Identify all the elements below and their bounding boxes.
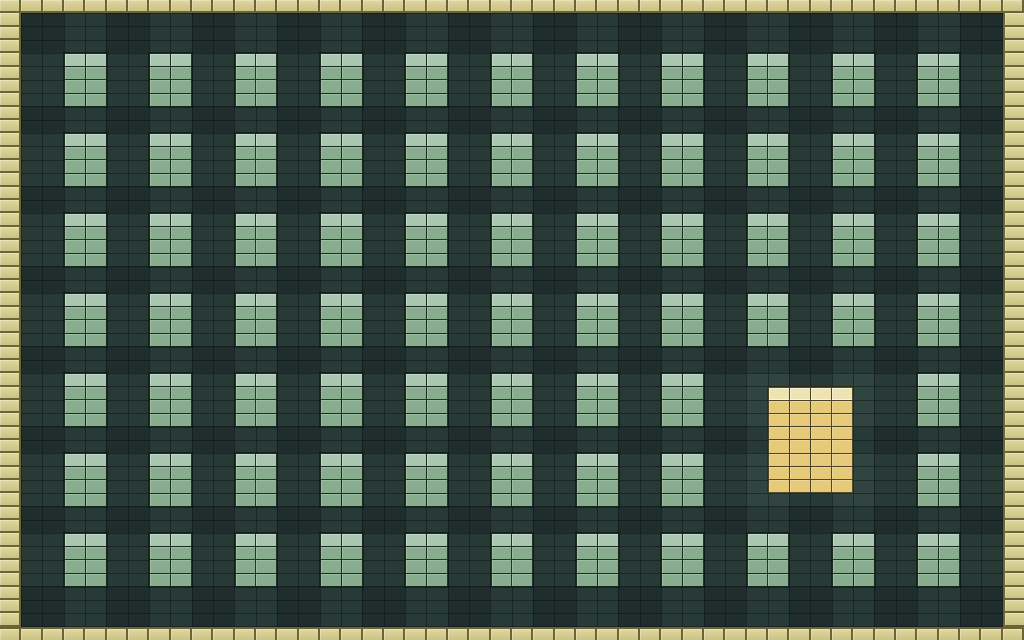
block[interactable] (64, 293, 107, 346)
block-cell (598, 387, 618, 399)
active-block-cell (769, 401, 789, 413)
block[interactable] (320, 53, 363, 106)
block-cell (598, 400, 618, 412)
block-cell (65, 240, 85, 252)
border-tile (555, 627, 576, 640)
block-cell (854, 560, 874, 572)
block[interactable] (917, 53, 960, 106)
block-cell (406, 454, 426, 466)
block-cell (321, 334, 341, 346)
border-tile (1003, 147, 1024, 160)
border-tile (0, 547, 21, 560)
block[interactable] (747, 293, 790, 346)
border-tile (0, 200, 21, 213)
block[interactable] (149, 53, 192, 106)
border-tile (1003, 573, 1024, 586)
block[interactable] (235, 133, 278, 186)
block-cell (492, 307, 512, 319)
block[interactable] (576, 213, 619, 266)
block-cell (492, 334, 512, 346)
block-cell (150, 480, 170, 492)
block-cell (236, 147, 256, 159)
block-cell (236, 467, 256, 479)
block-cell (833, 174, 853, 186)
block[interactable] (576, 533, 619, 586)
border-tile (1003, 213, 1024, 226)
block-cell (171, 454, 191, 466)
block-cell (833, 547, 853, 559)
block-cell (662, 494, 682, 506)
block[interactable] (405, 373, 448, 426)
block-cell (256, 254, 276, 266)
block-cell (662, 320, 682, 332)
block-cell (683, 374, 703, 386)
block[interactable] (747, 533, 790, 586)
block-cell (577, 480, 597, 492)
block-cell (171, 67, 191, 79)
block[interactable] (64, 133, 107, 186)
border-tile (0, 187, 21, 200)
block-cell (833, 214, 853, 226)
block-cell (342, 574, 362, 586)
block-cell (492, 560, 512, 572)
block-cell (577, 320, 597, 332)
border-tile (299, 627, 320, 640)
block-cell (492, 160, 512, 172)
block-cell (236, 174, 256, 186)
block-cell (512, 547, 532, 559)
border-tile (1003, 480, 1024, 493)
block-cell (150, 67, 170, 79)
block[interactable] (576, 373, 619, 426)
block-cell (171, 294, 191, 306)
block-cell (342, 374, 362, 386)
block-cell (65, 67, 85, 79)
block-cell (918, 574, 938, 586)
block-cell (577, 294, 597, 306)
block-cell (236, 454, 256, 466)
active-block-cell (790, 467, 810, 479)
block-cell (492, 214, 512, 226)
block[interactable] (917, 453, 960, 506)
block[interactable] (661, 53, 704, 106)
block-cell (236, 307, 256, 319)
block[interactable] (747, 213, 790, 266)
block-cell (406, 334, 426, 346)
border-tile (853, 627, 874, 640)
block[interactable] (576, 53, 619, 106)
block-cell (150, 307, 170, 319)
block-cell (854, 80, 874, 92)
block-cell (406, 94, 426, 106)
border-tile (0, 373, 21, 386)
block-cell (427, 254, 447, 266)
block[interactable] (491, 133, 534, 186)
block[interactable] (405, 453, 448, 506)
border-tile (0, 573, 21, 586)
block-cell (86, 547, 106, 559)
block-cell (939, 480, 959, 492)
block-cell (833, 240, 853, 252)
border-tile (491, 627, 512, 640)
border-tile (0, 387, 21, 400)
block-cell (86, 454, 106, 466)
block[interactable] (235, 453, 278, 506)
block-cell (342, 67, 362, 79)
block[interactable] (64, 533, 107, 586)
block[interactable] (405, 293, 448, 346)
block-cell (598, 54, 618, 66)
border-tile (1003, 507, 1024, 520)
block-cell (854, 134, 874, 146)
border-tile (683, 0, 704, 13)
block-cell (662, 254, 682, 266)
border-tile (1003, 400, 1024, 413)
block-cell (65, 414, 85, 426)
border-tile (0, 93, 21, 106)
block[interactable] (661, 293, 704, 346)
block[interactable] (491, 213, 534, 266)
block-cell (598, 560, 618, 572)
block-cell (150, 240, 170, 252)
block-cell (256, 160, 276, 172)
block[interactable] (491, 293, 534, 346)
block-cell (342, 214, 362, 226)
block-cell (512, 334, 532, 346)
block[interactable] (235, 213, 278, 266)
block-cell (171, 160, 191, 172)
border-tile (619, 0, 640, 13)
block-cell (577, 534, 597, 546)
block-cell (918, 307, 938, 319)
block[interactable] (661, 373, 704, 426)
active-block[interactable] (768, 387, 853, 494)
block-cell (65, 480, 85, 492)
block-cell (65, 467, 85, 479)
border-tile (576, 0, 597, 13)
block-cell (427, 374, 447, 386)
block-cell (321, 320, 341, 332)
block[interactable] (661, 453, 704, 506)
block[interactable] (64, 53, 107, 106)
border-tile (1003, 67, 1024, 80)
block[interactable] (491, 53, 534, 106)
border-tile (661, 0, 682, 13)
block[interactable] (320, 213, 363, 266)
active-block-cell (769, 440, 789, 452)
border-tile (1003, 267, 1024, 280)
block[interactable] (661, 533, 704, 586)
block-cell (854, 214, 874, 226)
block[interactable] (747, 53, 790, 106)
border-tile (0, 107, 21, 120)
block-cell (321, 54, 341, 66)
block[interactable] (405, 533, 448, 586)
block-cell (683, 54, 703, 66)
block-cell (768, 254, 788, 266)
block[interactable] (917, 293, 960, 346)
block-cell (854, 334, 874, 346)
block-cell (256, 494, 276, 506)
border-tile (640, 627, 661, 640)
block-cell (598, 574, 618, 586)
block-cell (939, 80, 959, 92)
block[interactable] (149, 373, 192, 426)
block-cell (598, 147, 618, 159)
block-cell (256, 307, 276, 319)
block[interactable] (235, 373, 278, 426)
active-block-cell (832, 427, 852, 439)
block-cell (86, 467, 106, 479)
block-cell (577, 467, 597, 479)
block-cell (86, 534, 106, 546)
block[interactable] (149, 293, 192, 346)
block-cell (662, 374, 682, 386)
block-cell (768, 574, 788, 586)
border-tile (1003, 93, 1024, 106)
border-tile (384, 627, 405, 640)
block-cell (683, 147, 703, 159)
border-tile (0, 333, 21, 346)
block[interactable] (149, 533, 192, 586)
block[interactable] (149, 213, 192, 266)
block[interactable] (491, 533, 534, 586)
block-cell (150, 294, 170, 306)
block-cell (833, 160, 853, 172)
block-cell (854, 294, 874, 306)
block-cell (492, 494, 512, 506)
block-cell (598, 494, 618, 506)
border-tile (768, 627, 789, 640)
block[interactable] (576, 293, 619, 346)
block-cell (939, 67, 959, 79)
block-cell (236, 414, 256, 426)
block-cell (939, 174, 959, 186)
border-tile (1003, 13, 1024, 26)
block-cell (577, 414, 597, 426)
block-cell (512, 560, 532, 572)
block-cell (512, 294, 532, 306)
block[interactable] (64, 213, 107, 266)
active-block-cell (790, 427, 810, 439)
block-cell (171, 560, 191, 572)
block-cell (171, 414, 191, 426)
block-cell (65, 254, 85, 266)
border-tile (384, 0, 405, 13)
block-cell (406, 54, 426, 66)
border-tile (1003, 587, 1024, 600)
block[interactable] (832, 133, 875, 186)
border-tile (981, 0, 1002, 13)
block-cell (683, 134, 703, 146)
block[interactable] (405, 133, 448, 186)
border-tile (1003, 280, 1024, 293)
block-cell (65, 54, 85, 66)
block-cell (768, 94, 788, 106)
block-cell (86, 80, 106, 92)
block-cell (512, 454, 532, 466)
block-cell (768, 80, 788, 92)
block-cell (427, 387, 447, 399)
block-cell (427, 80, 447, 92)
block[interactable] (917, 533, 960, 586)
block-cell (427, 560, 447, 572)
block-cell (86, 387, 106, 399)
block-cell (918, 467, 938, 479)
block-cell (342, 254, 362, 266)
block[interactable] (320, 373, 363, 426)
block[interactable] (405, 53, 448, 106)
block-cell (512, 94, 532, 106)
block-cell (748, 160, 768, 172)
block[interactable] (320, 293, 363, 346)
block-cell (833, 574, 853, 586)
block[interactable] (917, 133, 960, 186)
block-cell (939, 414, 959, 426)
border-tile (1003, 440, 1024, 453)
border-tile (0, 40, 21, 53)
block[interactable] (149, 133, 192, 186)
block[interactable] (320, 453, 363, 506)
border-tile (448, 627, 469, 640)
border-tile (107, 627, 128, 640)
block[interactable] (661, 133, 704, 186)
block-cell (662, 67, 682, 79)
block-cell (65, 134, 85, 146)
block-cell (683, 214, 703, 226)
block-cell (833, 334, 853, 346)
block-cell (662, 467, 682, 479)
block[interactable] (576, 453, 619, 506)
block-cell (577, 240, 597, 252)
block[interactable] (235, 293, 278, 346)
block[interactable] (320, 533, 363, 586)
block[interactable] (832, 213, 875, 266)
block[interactable] (64, 373, 107, 426)
block[interactable] (576, 133, 619, 186)
block-cell (342, 54, 362, 66)
block-cell (598, 534, 618, 546)
border-tile (0, 493, 21, 506)
border-tile (235, 627, 256, 640)
block-cell (65, 387, 85, 399)
border-tile (789, 0, 810, 13)
block-cell (321, 254, 341, 266)
block[interactable] (235, 533, 278, 586)
block-cell (512, 414, 532, 426)
block[interactable] (832, 293, 875, 346)
block-cell (939, 307, 959, 319)
block[interactable] (149, 453, 192, 506)
border-tile (320, 0, 341, 13)
active-block-cell (790, 401, 810, 413)
block-cell (427, 174, 447, 186)
block[interactable] (917, 373, 960, 426)
block-cell (683, 534, 703, 546)
border-tile (1003, 413, 1024, 426)
block[interactable] (832, 533, 875, 586)
block-cell (748, 54, 768, 66)
block-cell (86, 334, 106, 346)
border-tile (832, 627, 853, 640)
block[interactable] (235, 53, 278, 106)
block-cell (236, 374, 256, 386)
block-cell (939, 494, 959, 506)
active-block-cell (832, 454, 852, 466)
block-cell (833, 560, 853, 572)
block-cell (939, 320, 959, 332)
block[interactable] (661, 213, 704, 266)
border-tile (1003, 133, 1024, 146)
block-cell (662, 560, 682, 572)
block-cell (86, 294, 106, 306)
block-cell (939, 134, 959, 146)
active-block-cell (811, 454, 831, 466)
border-tile (747, 627, 768, 640)
block[interactable] (405, 213, 448, 266)
block-cell (748, 547, 768, 559)
block-cell (86, 414, 106, 426)
block-cell (662, 54, 682, 66)
border-tile (0, 627, 21, 640)
block-cell (65, 214, 85, 226)
border-tile (512, 0, 533, 13)
block[interactable] (320, 133, 363, 186)
block-cell (406, 80, 426, 92)
block-cell (662, 227, 682, 239)
block-cell (492, 374, 512, 386)
block[interactable] (747, 133, 790, 186)
active-block-cell (811, 480, 831, 492)
block-cell (65, 160, 85, 172)
block-cell (427, 307, 447, 319)
block[interactable] (491, 373, 534, 426)
block-cell (86, 94, 106, 106)
block-cell (939, 240, 959, 252)
border-tile (0, 453, 21, 466)
block-cell (171, 320, 191, 332)
active-block-cell (811, 388, 831, 400)
border-tile (896, 627, 917, 640)
block[interactable] (64, 453, 107, 506)
border-tile (640, 0, 661, 13)
block-cell (321, 214, 341, 226)
block-cell (833, 54, 853, 66)
block-cell (512, 227, 532, 239)
block-cell (171, 334, 191, 346)
block-cell (427, 334, 447, 346)
block[interactable] (491, 453, 534, 506)
block-cell (256, 560, 276, 572)
block-cell (918, 400, 938, 412)
block-cell (427, 547, 447, 559)
block-cell (256, 240, 276, 252)
block-cell (427, 227, 447, 239)
block-cell (939, 374, 959, 386)
block-cell (748, 80, 768, 92)
block-cell (939, 560, 959, 572)
block[interactable] (832, 53, 875, 106)
border-tile (0, 227, 21, 240)
active-block-cell (769, 427, 789, 439)
block-cell (406, 254, 426, 266)
block[interactable] (917, 213, 960, 266)
block-cell (321, 480, 341, 492)
block-cell (406, 67, 426, 79)
block-cell (683, 494, 703, 506)
block-cell (150, 400, 170, 412)
border-tile (1003, 187, 1024, 200)
